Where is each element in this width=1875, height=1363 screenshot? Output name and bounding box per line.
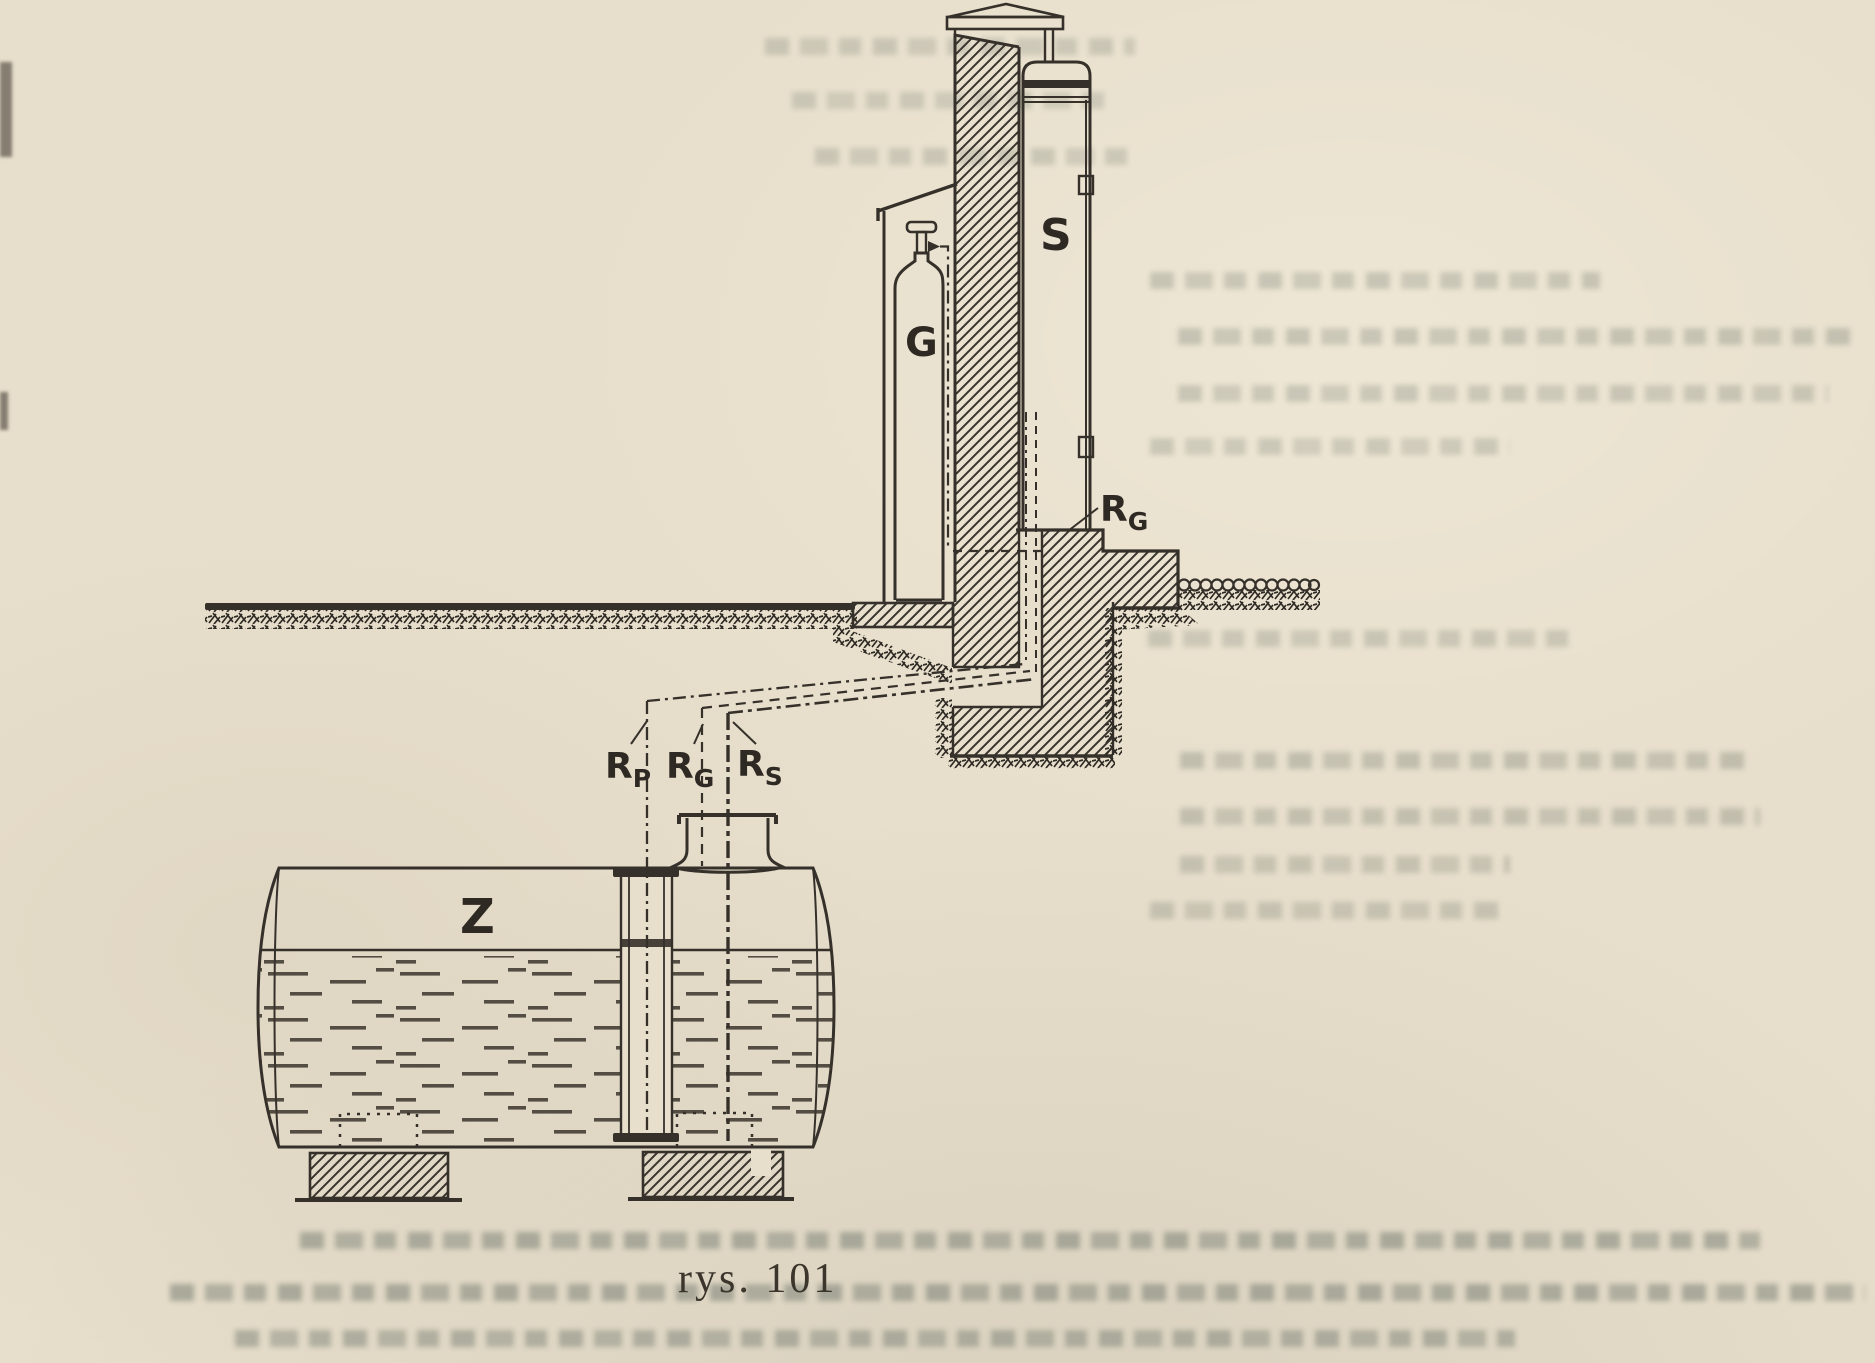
leader-pipe-p	[631, 721, 647, 744]
tank-z	[256, 815, 838, 1200]
leader-pipe-s	[733, 722, 756, 744]
foundation-right-grass	[1113, 608, 1200, 630]
saddle-right-notch	[751, 1150, 771, 1176]
label-pipe-g: RG	[666, 746, 714, 793]
dispenser-band-lines	[1023, 97, 1090, 102]
dispenser-body	[1023, 62, 1090, 530]
shed-roof	[878, 184, 957, 221]
column-shaft-hatch	[955, 35, 1019, 602]
label-pipe-g-main: R	[666, 746, 694, 787]
ground-grass-left	[205, 610, 857, 629]
cobblestone-grass	[1178, 590, 1320, 610]
gas-base-slab-hatch	[853, 603, 953, 627]
scanned-book-page: Z S G RP RG RS RG rys. 101	[0, 0, 1875, 1363]
label-pipe-g-foundation: RG	[1100, 489, 1148, 536]
pit-left-wall-grass	[935, 698, 952, 758]
dispenser-s	[1023, 62, 1093, 530]
cobblestones	[1179, 580, 1320, 591]
leader-pipe-g-foundation	[1068, 508, 1098, 531]
gas-valve-stem	[917, 232, 926, 253]
foundation-step-b-hatch	[1103, 551, 1178, 608]
foundation-step-a-hatch	[1042, 530, 1103, 602]
saddle-left-hatch	[310, 1153, 448, 1198]
column-cap-peak	[948, 4, 1064, 17]
gas-valve-handwheel	[907, 222, 936, 232]
column-cap-band	[947, 17, 1063, 29]
liquid-texture	[256, 956, 838, 1144]
label-pipe-s: RS	[737, 744, 783, 791]
label-pipe-s-sub: S	[765, 762, 783, 791]
label-pipe-g-sub: G	[694, 764, 715, 793]
label-pipe-g-foundation-main: R	[1100, 489, 1128, 530]
label-pipe-p: RP	[605, 746, 651, 793]
gas-flow-arrow	[928, 241, 940, 252]
pit-bottom-grass	[948, 756, 1115, 769]
label-dispenser-s: S	[1040, 210, 1072, 261]
figure-caption: rys. 101	[678, 1256, 837, 1302]
label-gas-cylinder-g: G	[905, 320, 938, 366]
label-pipe-s-main: R	[737, 744, 765, 785]
internal-pipe-bottom-flange	[613, 1133, 679, 1142]
gas-cylinder-body	[895, 253, 943, 600]
label-pipe-p-sub: P	[633, 764, 651, 793]
label-pipe-p-main: R	[605, 746, 633, 787]
masonry-column	[947, 4, 1064, 602]
pit-right-wall-grass	[1105, 608, 1122, 758]
label-tank-z: Z	[460, 889, 495, 945]
figure-101-diagram: Z S G RP RG RS RG rys. 101	[0, 0, 1875, 1363]
dispenser-band	[1023, 80, 1090, 88]
ground-line-left	[205, 603, 855, 610]
label-pipe-g-foundation-sub: G	[1128, 507, 1149, 536]
pit-left-slope-grass	[833, 624, 952, 684]
